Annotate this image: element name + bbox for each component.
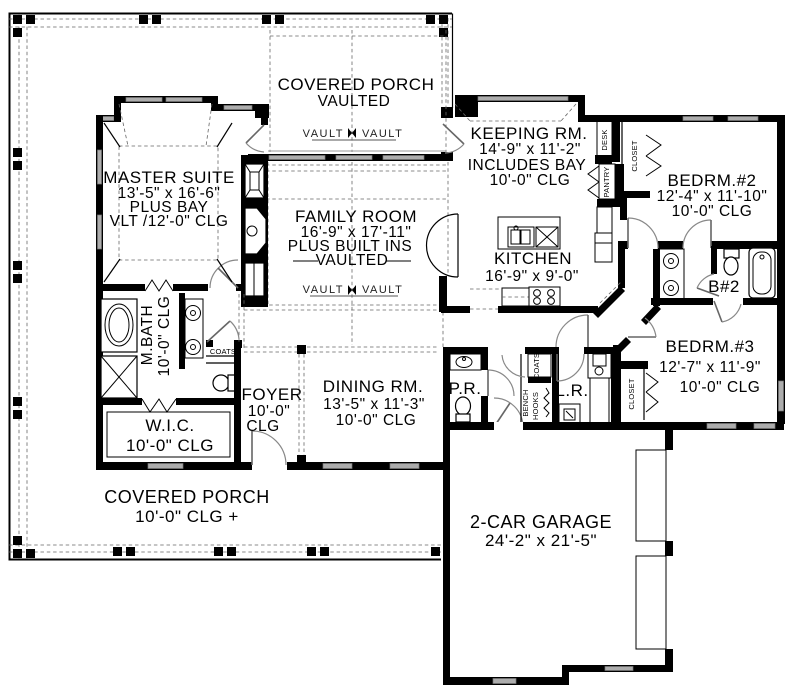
svg-text:L.R.: L.R. (555, 381, 588, 400)
svg-text:10'-0" CLG: 10'-0" CLG (680, 379, 761, 396)
svg-text:DINING RM.: DINING RM. (323, 377, 423, 396)
svg-text:KITCHEN: KITCHEN (494, 249, 572, 268)
svg-text:CLG: CLG (246, 418, 279, 435)
svg-text:10'-0" CLG: 10'-0" CLG (672, 203, 753, 220)
svg-text:VAULTED: VAULTED (318, 93, 391, 110)
svg-text:VAULT: VAULT (362, 128, 403, 140)
svg-text:COVERED PORCH: COVERED PORCH (278, 75, 435, 94)
svg-text:DESK: DESK (600, 129, 609, 150)
svg-text:PANTRY: PANTRY (602, 167, 611, 198)
svg-text:12'-7" x 11'-9": 12'-7" x 11'-9" (659, 359, 761, 376)
svg-text:10'-0" CLG: 10'-0" CLG (336, 412, 417, 429)
svg-text:13'-5" x 11'-3": 13'-5" x 11'-3" (323, 396, 425, 413)
svg-text:BEDRM.#3: BEDRM.#3 (665, 337, 754, 356)
svg-text:CLOSET: CLOSET (630, 140, 639, 171)
svg-text:W.I.C.: W.I.C. (145, 416, 194, 435)
svg-text:10'-0" CLG: 10'-0" CLG (126, 436, 214, 455)
svg-text:M.BATH: M.BATH (139, 305, 156, 365)
svg-text:VAULT: VAULT (303, 284, 344, 296)
svg-text:10'-0" CLG: 10'-0" CLG (156, 296, 173, 377)
svg-text:VAULT: VAULT (362, 284, 403, 296)
svg-text:VLT /12'-0" CLG: VLT /12'-0" CLG (110, 213, 229, 230)
svg-text:COATS: COATS (210, 347, 236, 356)
svg-text:14'-9" x 11'-2": 14'-9" x 11'-2" (479, 141, 581, 158)
svg-text:10'-0" CLG: 10'-0" CLG (490, 172, 571, 189)
svg-text:VAULT: VAULT (303, 128, 344, 140)
svg-text:24'-2" x 21'-5": 24'-2" x 21'-5" (485, 531, 597, 550)
svg-text:COATS: COATS (532, 353, 541, 379)
svg-text:2-CAR GARAGE: 2-CAR GARAGE (470, 512, 612, 532)
svg-text:FOYER: FOYER (241, 385, 302, 404)
svg-text:VAULTED: VAULTED (316, 252, 389, 269)
svg-text:COVERED PORCH: COVERED PORCH (104, 487, 270, 507)
svg-text:BENCH: BENCH (521, 389, 530, 416)
svg-text:CLOSET: CLOSET (627, 378, 636, 409)
svg-text:HOOKS: HOOKS (531, 392, 540, 420)
svg-text:16'-9" x 9'-0": 16'-9" x 9'-0" (485, 268, 579, 285)
svg-text:P.R.: P.R. (449, 379, 482, 398)
svg-text:10'-0" CLG +: 10'-0" CLG + (135, 507, 239, 526)
